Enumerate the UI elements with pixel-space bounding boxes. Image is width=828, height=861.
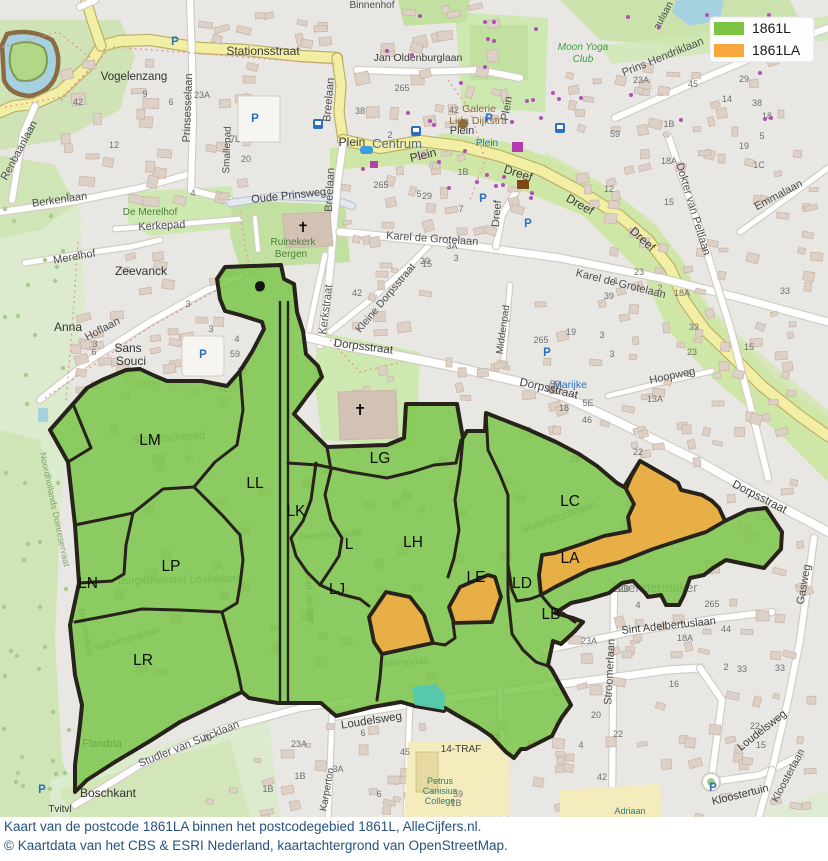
svg-text:33: 33 [737, 664, 747, 674]
svg-text:LE: LE [467, 569, 486, 586]
svg-text:LN: LN [78, 575, 98, 592]
svg-text:12: 12 [109, 140, 119, 150]
svg-text:Binnenhof: Binnenhof [349, 0, 394, 11]
svg-text:45: 45 [400, 747, 410, 757]
svg-text:3: 3 [453, 253, 458, 263]
svg-text:1B: 1B [457, 167, 468, 177]
svg-text:LL: LL [246, 475, 264, 492]
svg-text:6: 6 [360, 728, 365, 738]
svg-text:5: 5 [416, 189, 421, 199]
svg-text:Zeevanck: Zeevanck [115, 264, 168, 278]
svg-text:LJ: LJ [329, 581, 345, 598]
svg-text:4: 4 [190, 188, 195, 198]
svg-text:23A: 23A [194, 90, 210, 100]
svg-text:Stationsstraat: Stationsstraat [226, 44, 300, 58]
svg-text:22: 22 [750, 721, 760, 731]
svg-text:42: 42 [449, 105, 459, 115]
svg-text:4: 4 [578, 740, 583, 750]
svg-text:L: L [345, 536, 354, 553]
svg-text:3: 3 [92, 339, 97, 349]
svg-text:P: P [709, 782, 717, 794]
svg-text:9: 9 [142, 89, 147, 99]
svg-text:42: 42 [597, 772, 607, 782]
svg-text:3: 3 [609, 349, 614, 359]
svg-text:18A: 18A [661, 156, 677, 166]
svg-text:2: 2 [387, 130, 392, 140]
svg-text:33: 33 [689, 322, 699, 332]
svg-text:14-TRAF: 14-TRAF [441, 744, 482, 755]
svg-text:59: 59 [453, 789, 463, 799]
svg-text:LD: LD [512, 575, 532, 592]
svg-text:3: 3 [599, 330, 604, 340]
svg-text:5E: 5E [582, 398, 593, 408]
svg-text:5: 5 [759, 131, 764, 141]
svg-text:1C: 1C [753, 160, 765, 170]
svg-text:1B: 1B [450, 798, 461, 808]
svg-text:13A: 13A [647, 394, 663, 404]
svg-text:4: 4 [635, 600, 640, 610]
svg-text:19: 19 [566, 327, 576, 337]
svg-text:LC: LC [560, 493, 580, 510]
svg-text:14: 14 [722, 94, 732, 104]
svg-text:P: P [38, 784, 46, 796]
svg-text:LK: LK [287, 503, 307, 520]
svg-text:P: P [479, 193, 487, 205]
svg-text:59: 59 [550, 379, 560, 389]
svg-text:1861L: 1861L [752, 20, 791, 36]
svg-text:42: 42 [73, 97, 83, 107]
svg-text:23A: 23A [633, 75, 649, 85]
svg-text:23: 23 [687, 347, 697, 357]
svg-text:P: P [251, 113, 259, 125]
svg-text:15: 15 [664, 197, 674, 207]
svg-text:59: 59 [610, 129, 620, 139]
svg-text:LR: LR [133, 652, 153, 669]
svg-text:Centrum: Centrum [372, 136, 422, 151]
svg-text:✝: ✝ [297, 219, 309, 235]
svg-text:Tvitvl: Tvitvl [48, 804, 71, 815]
svg-text:6: 6 [376, 789, 381, 799]
svg-text:22: 22 [613, 729, 623, 739]
svg-text:Dreef: Dreef [490, 199, 504, 228]
svg-text:P: P [485, 113, 493, 125]
svg-text:6: 6 [168, 97, 173, 107]
svg-text:3A: 3A [446, 241, 457, 251]
svg-text:46: 46 [582, 415, 592, 425]
svg-text:12: 12 [604, 184, 614, 194]
svg-text:✝: ✝ [354, 402, 367, 419]
svg-text:38: 38 [355, 106, 365, 116]
svg-text:20: 20 [241, 154, 251, 164]
svg-text:Souci: Souci [116, 354, 146, 368]
svg-text:1B: 1B [294, 771, 305, 781]
svg-text:Jan Oldenburglaan: Jan Oldenburglaan [374, 52, 463, 64]
svg-text:2: 2 [723, 662, 728, 672]
svg-text:Boschkant: Boschkant [80, 786, 137, 800]
svg-text:Kerkepad: Kerkepad [138, 219, 186, 233]
svg-text:15: 15 [744, 342, 754, 352]
svg-text:Club: Club [573, 54, 594, 65]
svg-text:Bergen: Bergen [275, 249, 307, 260]
svg-text:16: 16 [669, 679, 679, 689]
svg-text:265: 265 [394, 83, 409, 93]
svg-text:4: 4 [234, 334, 239, 344]
svg-text:18: 18 [559, 403, 569, 413]
svg-text:59: 59 [230, 349, 240, 359]
svg-text:265: 265 [373, 180, 388, 190]
svg-text:23A: 23A [581, 636, 597, 646]
svg-text:Adriaan: Adriaan [614, 806, 645, 816]
svg-text:LH: LH [403, 534, 423, 551]
svg-text:23: 23 [634, 267, 644, 277]
svg-text:18A: 18A [674, 288, 690, 298]
svg-text:1B: 1B [262, 784, 273, 794]
svg-text:1861LA: 1861LA [752, 42, 801, 58]
svg-text:P: P [524, 218, 532, 230]
svg-text:3: 3 [185, 299, 190, 309]
svg-text:Ruinekerk: Ruinekerk [270, 237, 316, 248]
svg-text:Petrus: Petrus [427, 776, 454, 786]
svg-text:20: 20 [591, 710, 601, 720]
svg-text:LA: LA [561, 550, 581, 567]
svg-text:P: P [543, 347, 551, 359]
svg-text:15: 15 [756, 740, 766, 750]
svg-text:33: 33 [780, 286, 790, 296]
svg-text:Sans: Sans [114, 341, 141, 355]
svg-text:LP: LP [162, 558, 181, 575]
svg-text:19: 19 [739, 141, 749, 151]
svg-text:44: 44 [721, 624, 731, 634]
svg-text:P: P [171, 36, 179, 48]
svg-text:29: 29 [202, 733, 212, 743]
svg-text:265: 265 [704, 599, 719, 609]
svg-text:29: 29 [422, 191, 432, 201]
svg-text:1: 1 [613, 276, 618, 286]
svg-text:LB: LB [542, 606, 561, 623]
svg-text:7: 7 [458, 204, 463, 214]
svg-text:Anna: Anna [54, 320, 82, 334]
svg-text:45: 45 [688, 79, 698, 89]
svg-text:LG: LG [370, 450, 391, 467]
svg-text:20: 20 [420, 256, 430, 266]
svg-text:18A: 18A [677, 633, 693, 643]
svg-text:38: 38 [752, 98, 762, 108]
svg-text:29: 29 [739, 74, 749, 84]
svg-text:1B: 1B [663, 119, 674, 129]
svg-text:P: P [199, 349, 207, 361]
svg-text:42: 42 [352, 288, 362, 298]
svg-text:LM: LM [139, 432, 161, 449]
svg-text:De Merelhof: De Merelhof [123, 207, 178, 218]
svg-text:3: 3 [208, 324, 213, 334]
svg-text:Plein: Plein [476, 138, 498, 149]
svg-text:39: 39 [604, 291, 614, 301]
svg-text:8: 8 [686, 369, 691, 379]
svg-text:33: 33 [775, 663, 785, 673]
svg-text:22: 22 [633, 447, 643, 457]
svg-text:7L: 7L [230, 134, 240, 144]
svg-text:23A: 23A [291, 739, 307, 749]
svg-text:Prinsesselaan: Prinsesselaan [181, 73, 195, 142]
svg-text:2: 2 [657, 283, 662, 293]
svg-text:265: 265 [533, 335, 548, 345]
svg-text:3A: 3A [332, 764, 343, 774]
svg-text:Vogelenzang: Vogelenzang [101, 71, 168, 83]
svg-text:Moon Yoga: Moon Yoga [558, 42, 609, 53]
